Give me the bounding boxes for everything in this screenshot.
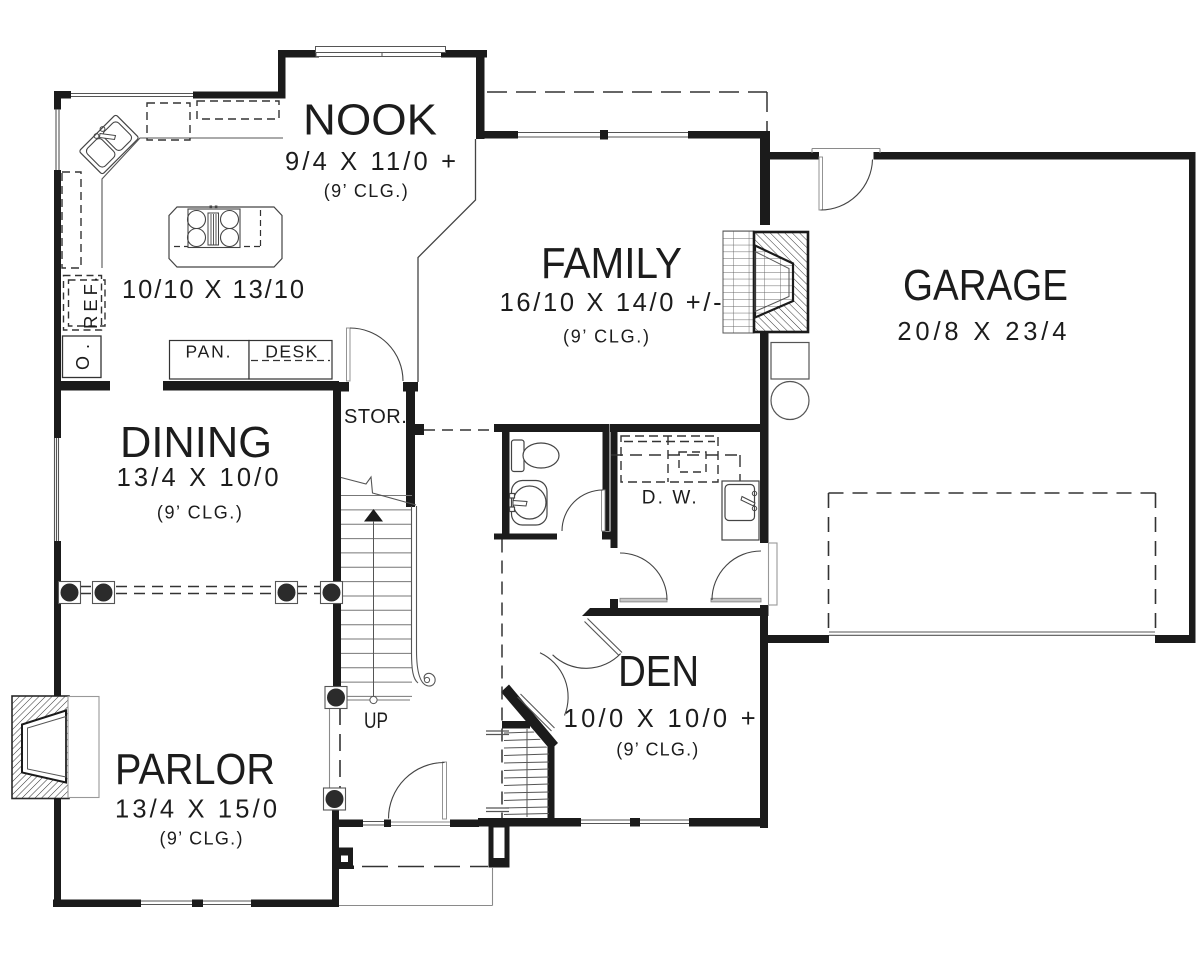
svg-text:(9’ CLG.): (9’ CLG.) xyxy=(563,327,649,347)
svg-text:STOR.: STOR. xyxy=(344,406,407,428)
svg-text:16/10 X 14/0 +/-: 16/10 X 14/0 +/- xyxy=(500,289,722,317)
svg-text:10/0 X 10/0 +: 10/0 X 10/0 + xyxy=(564,705,756,733)
svg-text:PARLOR: PARLOR xyxy=(115,745,275,794)
svg-text:FAMILY: FAMILY xyxy=(541,239,682,288)
svg-text:13/4 X 10/0: 13/4 X 10/0 xyxy=(117,464,279,492)
svg-text:(9’ CLG.): (9’ CLG.) xyxy=(160,829,243,849)
svg-text:(9’ CLG.): (9’ CLG.) xyxy=(616,740,698,760)
svg-text:(9’ CLG.): (9’ CLG.) xyxy=(324,181,408,201)
svg-text:20/8 X 23/4: 20/8 X 23/4 xyxy=(897,318,1066,346)
svg-text:DINING: DINING xyxy=(120,418,272,467)
svg-text:NOOK: NOOK xyxy=(303,96,437,145)
svg-text:(9’ CLG.): (9’ CLG.) xyxy=(157,503,242,523)
svg-text:DEN: DEN xyxy=(618,647,699,696)
svg-text:D. W.: D. W. xyxy=(642,488,697,509)
svg-text:O.: O. xyxy=(73,344,93,370)
svg-text:10/10 X 13/10: 10/10 X 13/10 xyxy=(122,276,304,304)
svg-text:GARAGE: GARAGE xyxy=(903,261,1068,310)
svg-text:13/4 X 15/0: 13/4 X 15/0 xyxy=(115,796,277,824)
svg-text:PAN.: PAN. xyxy=(186,342,231,362)
svg-text:UP: UP xyxy=(364,708,388,733)
